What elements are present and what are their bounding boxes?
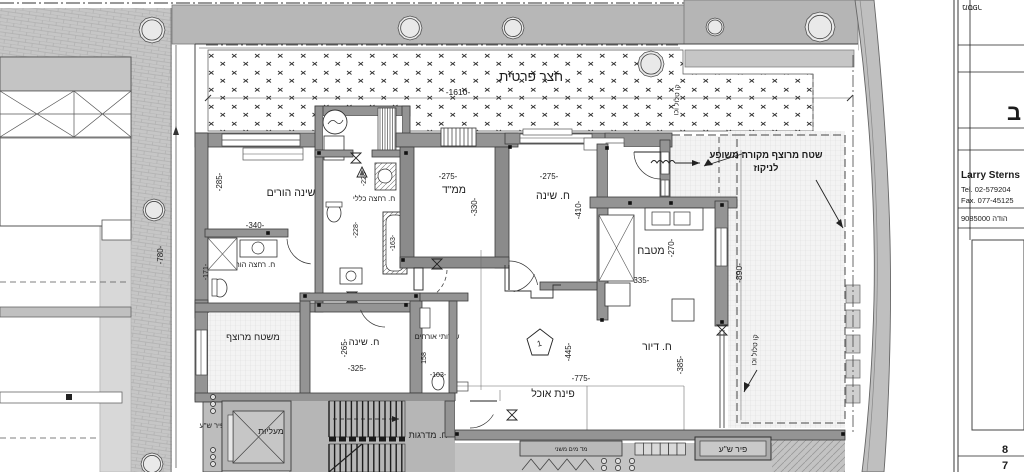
svg-text:-270-: -270- [667,238,676,257]
svg-text:קו טלול וכו: קו טלול וכו [672,84,682,115]
svg-text:-890-: -890- [734,263,744,283]
svg-text:פיר ש"ע: פיר ש"ע [199,421,225,430]
svg-text:פינת אוכל: פינת אוכל [531,388,575,400]
svg-text:מעליות: מעליות [258,426,284,436]
svg-text:-265-: -265- [340,338,349,357]
svg-text:158: 158 [421,352,428,364]
svg-text:לניקוז: לניקוז [754,163,779,174]
svg-text:-410-: -410- [574,200,583,219]
svg-text:מספר: מספר [962,3,982,12]
svg-text:-103-: -103- [430,372,447,379]
svg-text:ח. מדרגות: ח. מדרגות [409,430,448,440]
svg-text:שטח מרוצף מקורה משופע: שטח מרוצף מקורה משופע [709,150,822,161]
svg-text:משטח מרוצף: משטח מרוצף [226,332,280,343]
svg-text:9085000 הודה: 9085000 הודה [961,214,1008,223]
svg-text:-385-: -385- [676,355,685,374]
svg-text:-171-: -171- [203,263,210,280]
svg-text:7: 7 [1002,460,1008,472]
svg-text:ח. שינה: ח. שינה [349,337,380,348]
svg-text:פיר ש"ע: פיר ש"ע [719,444,747,454]
svg-text:-775-: -775- [572,374,591,383]
svg-text:חצר פרטית: חצר פרטית [499,69,563,84]
svg-text:-228-: -228- [353,221,360,238]
svg-text:-275-: -275- [540,172,559,181]
svg-text:8: 8 [1002,444,1008,456]
svg-text:-780-: -780- [156,245,165,264]
svg-text:מד מים משני: מד מים משני [555,447,588,453]
svg-text:ח. שינה: ח. שינה [536,190,570,202]
svg-text:ח. רחצה כללי: ח. רחצה כללי [353,194,395,203]
svg-text:-163-: -163- [390,234,397,251]
svg-text:-1610-: -1610- [446,87,471,97]
svg-text:-330-: -330- [470,197,479,216]
svg-text:-285-: -285- [215,172,224,191]
svg-text:Tel. 02-579204: Tel. 02-579204 [961,185,1011,194]
svg-text:-445-: -445- [564,342,573,361]
svg-text:ממ"ד: ממ"ד [442,184,466,196]
svg-text:מטבח: מטבח [637,245,664,257]
svg-text:שינה הורים: שינה הורים [267,187,316,199]
svg-text:Fax. 077-45125: Fax. 077-45125 [961,196,1014,205]
svg-text:-325-: -325- [348,364,367,373]
svg-text:Larry Sterns: Larry Sterns [961,170,1020,181]
svg-text:-275-: -275- [439,172,458,181]
svg-text:ח. דיור: ח. דיור [642,341,672,353]
svg-text:קו טלול וכו: קו טלול וכו [750,334,760,365]
svg-text:ב: ב [1007,100,1021,125]
